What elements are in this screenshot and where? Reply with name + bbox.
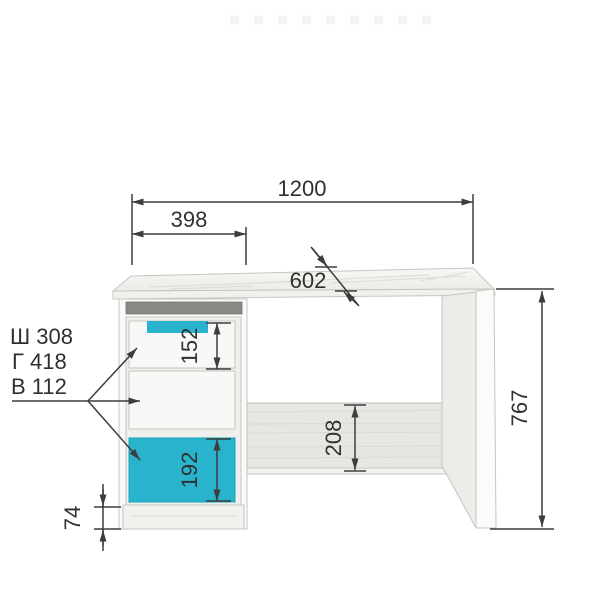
dim-pedestal-width: 398 bbox=[132, 207, 246, 265]
dim-plinth-height: 74 bbox=[60, 484, 121, 551]
dim-208-value: 208 bbox=[321, 420, 346, 457]
dim-192-value: 192 bbox=[177, 452, 202, 489]
drawer-spec-height-label: В 112 bbox=[11, 374, 67, 399]
drawer-spec-width-label: Ш 308 bbox=[10, 324, 73, 349]
desk-diagram-canvas: 1200 398 602 152 192 208 767 bbox=[0, 0, 600, 600]
drawer-2 bbox=[129, 371, 235, 429]
furniture-dimension-drawing: 1200 398 602 152 192 208 767 bbox=[0, 0, 600, 600]
dim-total-width-value: 1200 bbox=[278, 176, 327, 201]
open-niche bbox=[126, 302, 242, 314]
right-leg-front-face bbox=[476, 289, 496, 528]
right-leg bbox=[442, 289, 496, 528]
right-leg-inner-face bbox=[442, 292, 476, 528]
dim-pedestal-width-value: 398 bbox=[171, 207, 208, 232]
dim-top-depth-arrow-upper bbox=[312, 248, 327, 266]
plinth bbox=[123, 505, 244, 529]
dim-top-depth-value: 602 bbox=[290, 268, 327, 293]
dim-total-height: 767 bbox=[490, 289, 554, 529]
desk bbox=[113, 268, 496, 529]
drawer-spec-depth-label: Г 418 bbox=[12, 349, 67, 374]
dim-767-value: 767 bbox=[507, 390, 532, 427]
dim-74-value: 74 bbox=[60, 506, 85, 530]
dim-152-value: 152 bbox=[177, 328, 202, 365]
